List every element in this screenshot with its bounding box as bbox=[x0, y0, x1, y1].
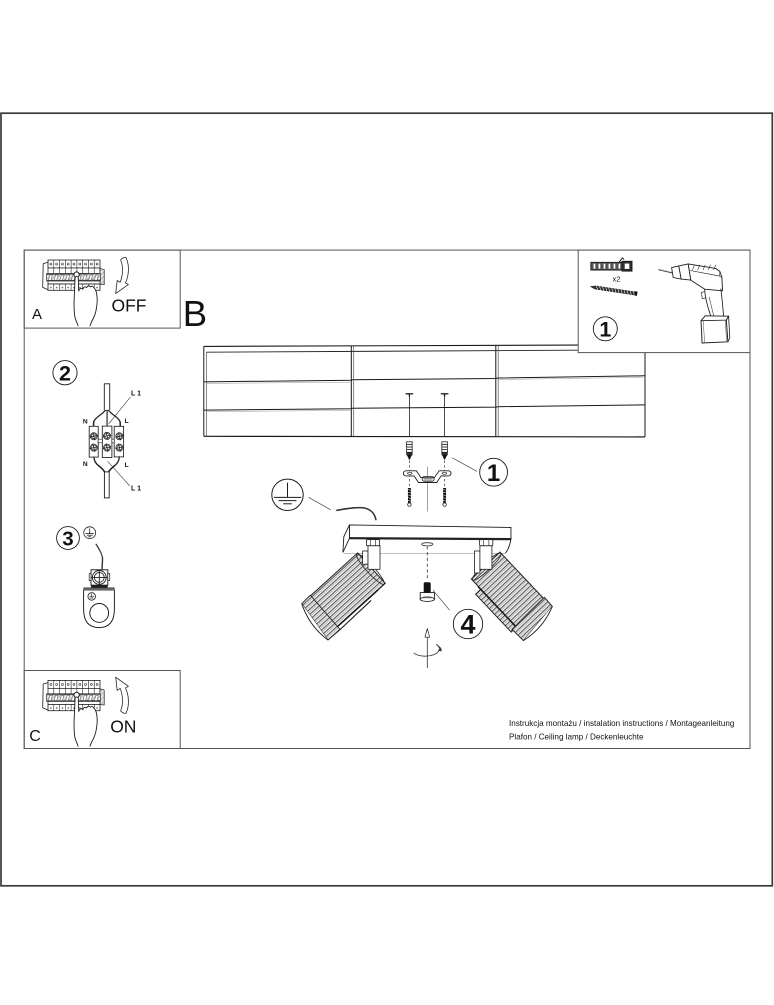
svg-text:A: A bbox=[32, 306, 42, 323]
svg-text:L 1: L 1 bbox=[131, 390, 141, 397]
svg-text:4: 4 bbox=[460, 610, 475, 640]
svg-text:1: 1 bbox=[599, 318, 611, 342]
svg-text:2: 2 bbox=[59, 361, 71, 385]
svg-text:3: 3 bbox=[62, 527, 73, 550]
svg-text:L: L bbox=[125, 462, 129, 469]
svg-text:Instrukcja montażu / instalati: Instrukcja montażu / instalation instruc… bbox=[509, 719, 734, 728]
svg-text:Plafon / Ceiling lamp / Decken: Plafon / Ceiling lamp / Deckenleuchte bbox=[509, 733, 644, 742]
svg-text:N: N bbox=[83, 418, 88, 425]
svg-text:ON: ON bbox=[110, 717, 136, 737]
svg-text:N: N bbox=[83, 461, 88, 468]
svg-text:B: B bbox=[183, 293, 207, 334]
svg-text:x2: x2 bbox=[613, 274, 621, 283]
svg-text:OFF: OFF bbox=[112, 295, 147, 315]
svg-text:C: C bbox=[29, 728, 41, 745]
svg-text:L: L bbox=[125, 418, 129, 425]
svg-text:1: 1 bbox=[487, 460, 500, 487]
svg-text:L 1: L 1 bbox=[131, 486, 141, 493]
